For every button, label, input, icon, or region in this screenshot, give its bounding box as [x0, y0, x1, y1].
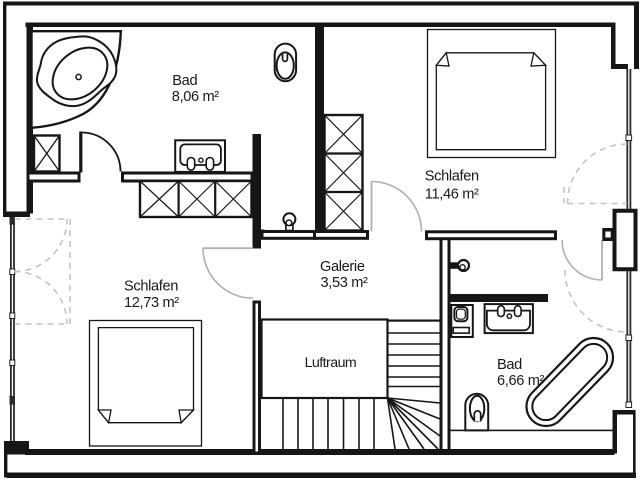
svg-text:Schlafen: Schlafen — [124, 279, 178, 295]
svg-text:11,46 m²: 11,46 m² — [425, 187, 479, 203]
svg-text:6,66 m²: 6,66 m² — [497, 373, 545, 389]
svg-text:Bad: Bad — [497, 357, 522, 373]
svg-text:Bad: Bad — [172, 73, 197, 89]
svg-text:Luftraum: Luftraum — [305, 355, 357, 371]
svg-text:Galerie: Galerie — [320, 259, 365, 275]
svg-text:Schlafen: Schlafen — [425, 169, 479, 185]
svg-text:12,73 m²: 12,73 m² — [124, 295, 179, 311]
svg-text:8,06 m²: 8,06 m² — [172, 89, 220, 105]
svg-text:3,53 m²: 3,53 m² — [321, 275, 369, 291]
